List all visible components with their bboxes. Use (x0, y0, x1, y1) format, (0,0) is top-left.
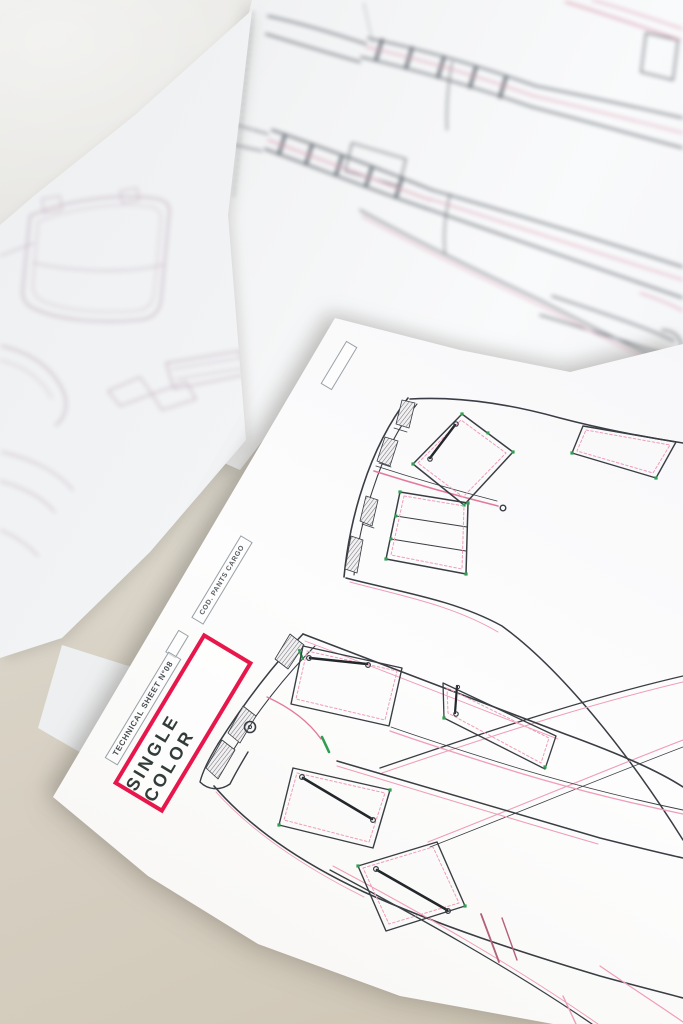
front-pocket-upper (291, 646, 402, 726)
pants-technical-drawing (0, 0, 683, 1024)
side-welt-pocket (442, 683, 556, 769)
photo-scene: COD. PANTS CARGO TECHNICAL SHEET N°08 SI… (0, 0, 683, 1024)
pants-back-view (344, 398, 683, 847)
belt-loops-back (345, 400, 415, 573)
back-pocket-zip (411, 412, 514, 506)
back-pocket-right (570, 426, 676, 480)
front-pocket-lower (277, 768, 391, 848)
pants-front-view (200, 634, 683, 1024)
thigh-zip-pocket (356, 842, 466, 931)
bartack (322, 737, 329, 752)
front-technical-sheet: COD. PANTS CARGO TECHNICAL SHEET N°08 SI… (0, 0, 683, 1024)
cargo-pocket-back (384, 490, 469, 575)
